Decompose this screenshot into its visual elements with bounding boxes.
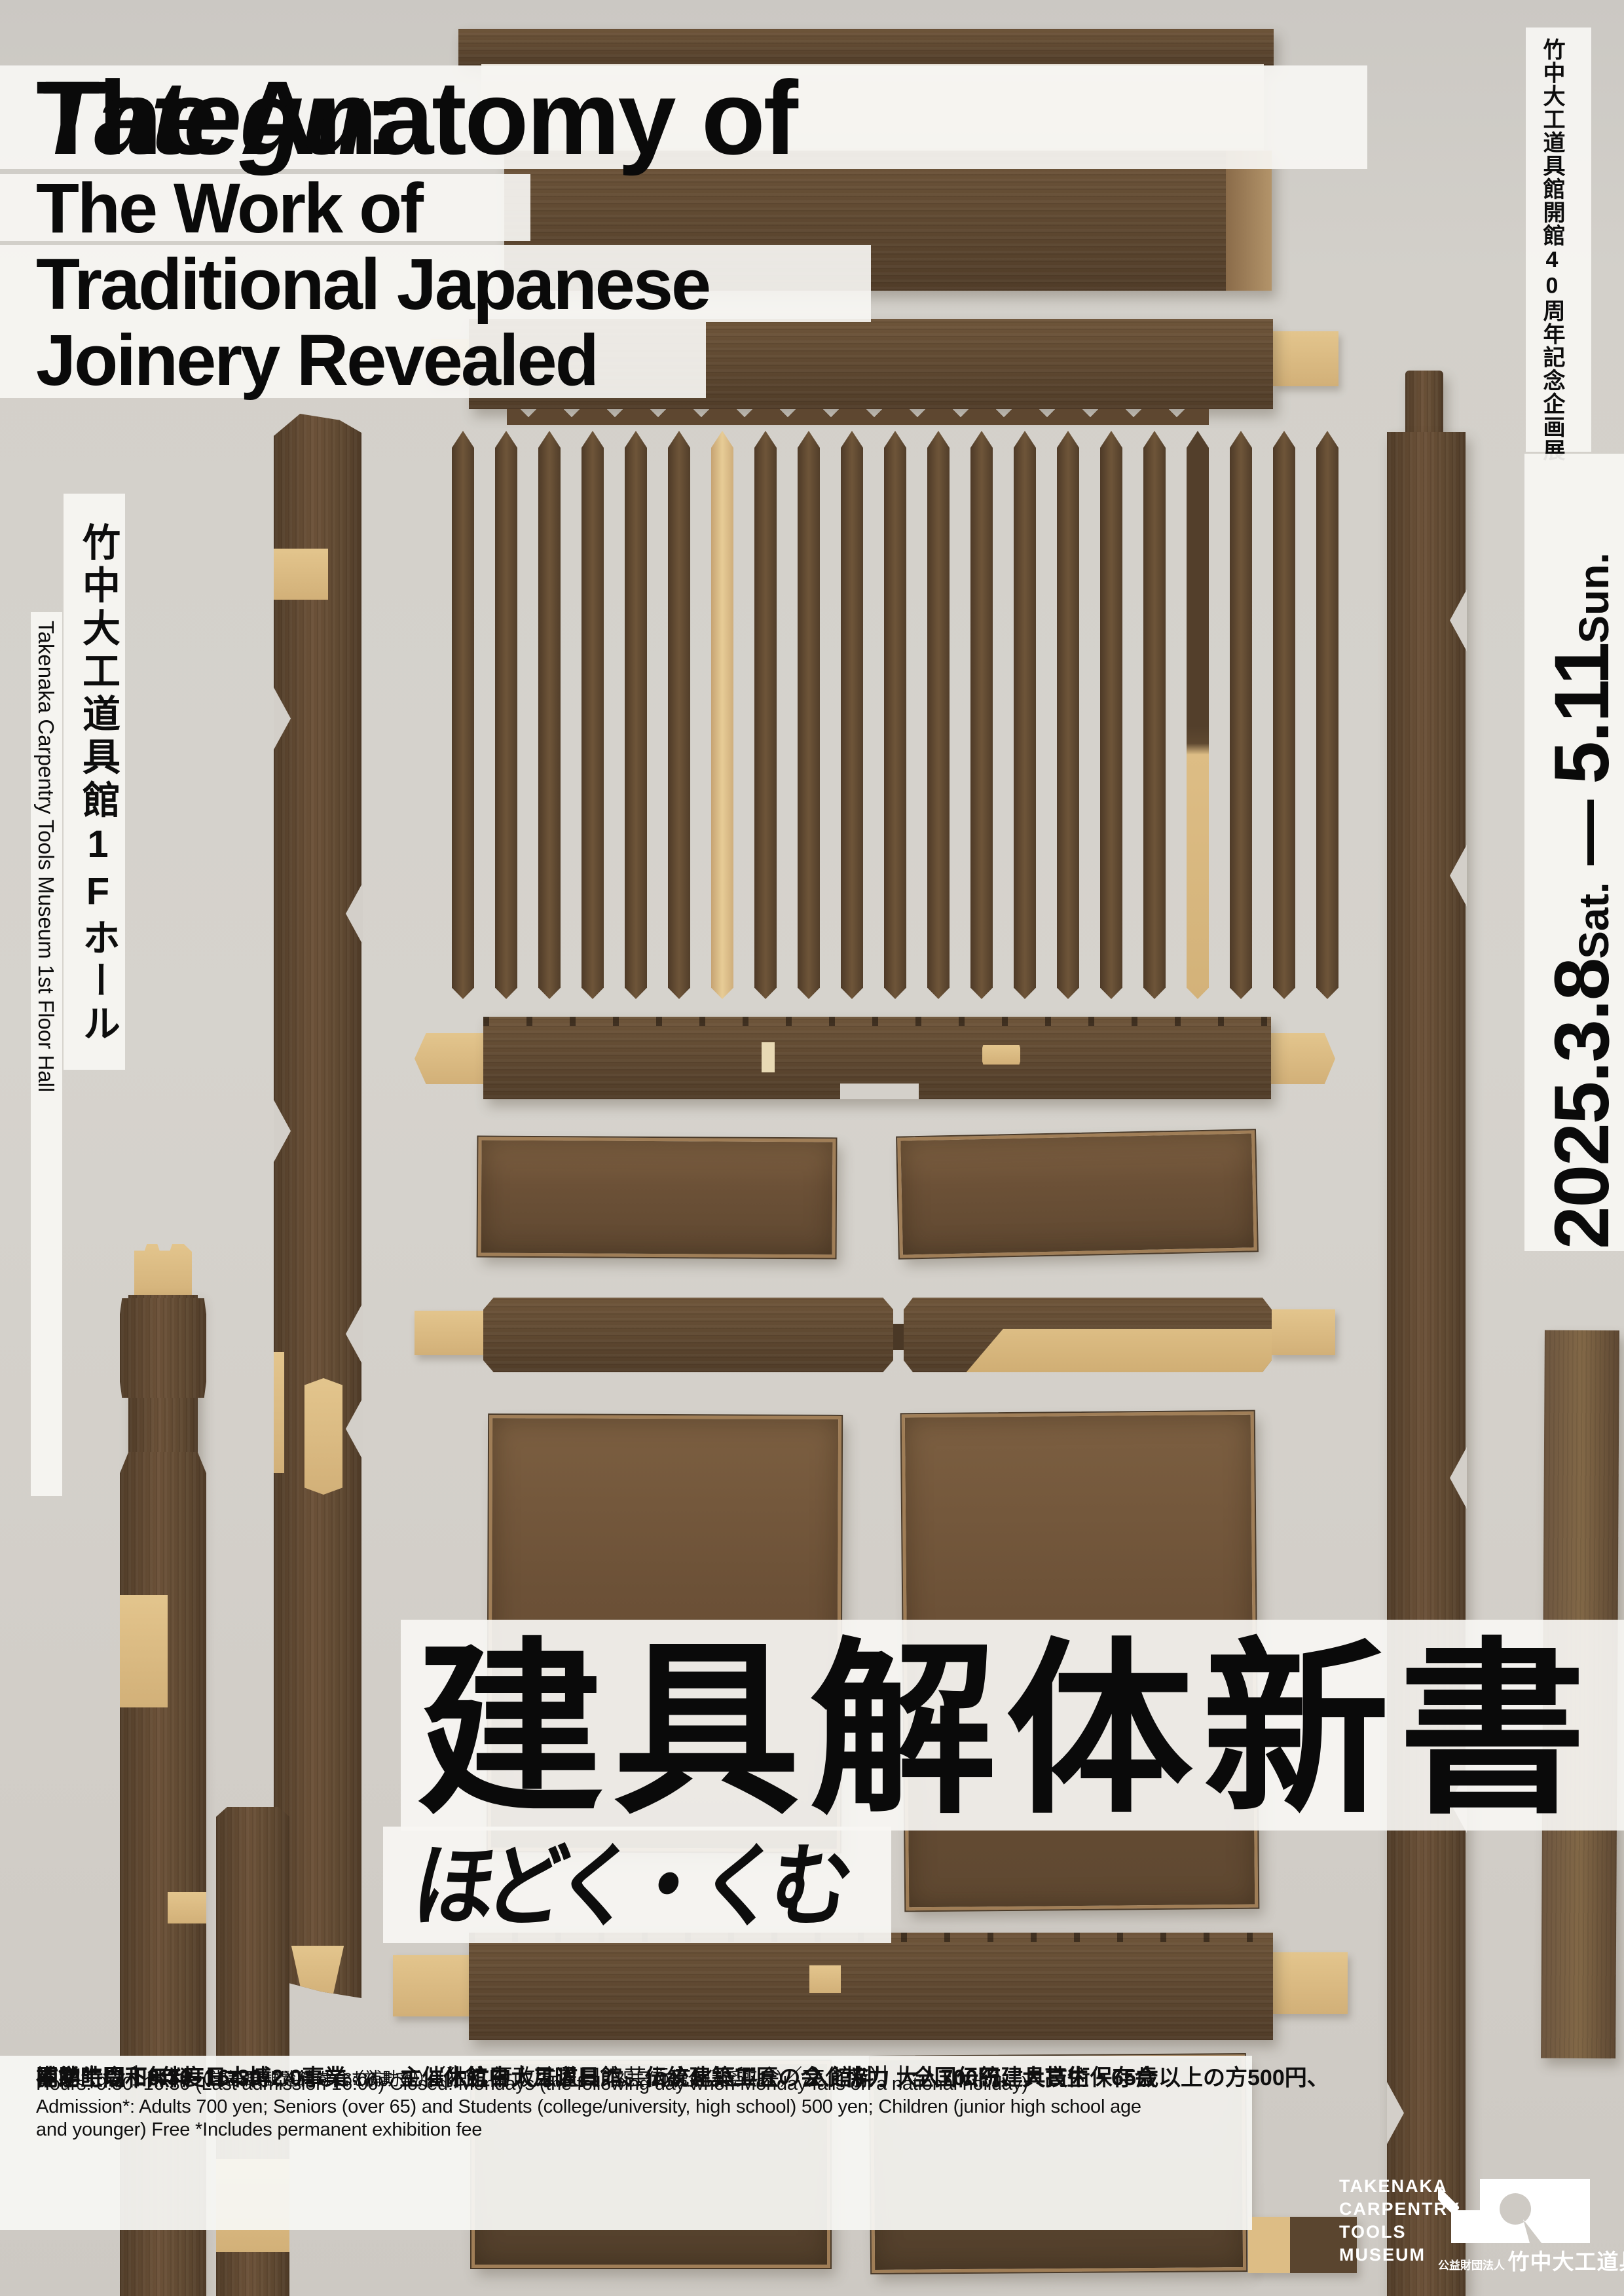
rail1-right-tenon xyxy=(1268,1033,1335,1084)
wood-middle-rail-2-left xyxy=(483,1298,893,1372)
kumiko-slat xyxy=(1143,431,1166,999)
poster-title-line3: Traditional Japanese xyxy=(36,249,709,321)
kumiko-slat xyxy=(1100,431,1122,999)
kumiko-slat xyxy=(841,431,863,999)
kumiko-slat xyxy=(1316,431,1338,999)
date-end-day: Sun. xyxy=(1570,553,1617,644)
main-title-kanji: 建具解体新書 xyxy=(416,1625,1595,1836)
rail1-left-tenon xyxy=(415,1033,487,1084)
poster-title-line1: The Anatomy of Tategu: xyxy=(36,68,397,168)
stile-b-bulge-upper xyxy=(120,1298,206,1398)
rail1-bottom-notch xyxy=(840,1084,919,1099)
wood-panel-1-right xyxy=(897,1130,1257,1258)
bottom-rail-left-tenon xyxy=(393,1955,473,2016)
wood-left-stile-a xyxy=(274,414,361,1998)
kumiko-slat xyxy=(754,431,777,999)
kumiko-slat xyxy=(452,431,474,999)
text-line: and younger) Free *Includes permanent ex… xyxy=(36,2119,1241,2141)
left-venue-text-en: Takenaka Carpentry Tools Museum 1st Floo… xyxy=(32,621,60,1491)
stile-a-hex-splice xyxy=(304,1378,342,1495)
bottom-rail-right-tenon xyxy=(1270,1952,1348,2014)
rail1-slot xyxy=(762,1042,775,1072)
rail1-plug xyxy=(982,1045,1020,1065)
exhibition-poster: The Anatomy of Tategu: The Work of Tradi… xyxy=(0,0,1624,2296)
wood-middle-rail-1 xyxy=(483,1017,1271,1099)
kumiko-slat xyxy=(798,431,820,999)
kumiko-slat xyxy=(1057,431,1079,999)
date-start: 2025.3.8 xyxy=(1539,959,1624,1249)
poster-title-line4: Joinery Revealed xyxy=(36,325,597,397)
info-en-lines: Hours: 9:30–16:30 (Last admission 16:00)… xyxy=(36,2073,1241,2141)
text-line: Hours: 9:30–16:30 (Last admission 16:00)… xyxy=(36,2073,1241,2096)
wood-middle-rail-2-right xyxy=(904,1298,1272,1372)
poster-title-line2: The Work of xyxy=(36,175,422,241)
museum-logo-mark xyxy=(1438,2170,1590,2243)
title-line1-colon: : xyxy=(364,59,397,176)
kumiko-slat xyxy=(495,431,517,999)
museum-name-jp: 公益財団法人 竹中大工道具館 xyxy=(1438,2244,1621,2273)
wood-bottom-rail xyxy=(469,1933,1273,2040)
subtitle-kana: ほどく・くむ xyxy=(406,1829,851,1944)
stile-b-splice xyxy=(120,1595,168,1707)
stile-b-small-splice xyxy=(168,1892,206,1923)
date-dash: ― xyxy=(1549,784,1623,883)
kumiko-slat xyxy=(625,431,647,999)
kumiko-slat xyxy=(668,431,690,999)
stile-a-splice xyxy=(274,549,328,600)
bottom-rail-plug xyxy=(809,1965,841,1993)
stile-b-fork-tenon xyxy=(134,1244,192,1300)
wood-right-stile xyxy=(1387,432,1466,2296)
kumiko-slat xyxy=(970,431,993,999)
rail2-splice-wedge xyxy=(904,1298,1272,1372)
rail2-left-tenon xyxy=(415,1311,487,1355)
kumiko-slat xyxy=(884,431,906,999)
kumiko-slat xyxy=(1230,431,1252,999)
date-start-day: Sat. xyxy=(1570,882,1617,958)
text-line: Admission*: Adults 700 yen; Seniors (ove… xyxy=(36,2096,1241,2119)
kumiko-slat xyxy=(538,431,561,999)
museum-name-jp-large: 竹中大工道具館 xyxy=(1507,2250,1624,2274)
exhibition-dates: 2025.3.8Sat. ― 5.11Sun. xyxy=(1532,454,1624,1249)
rail2-right-tenon xyxy=(1268,1309,1335,1355)
stile-a-edge-splice xyxy=(274,1352,284,1473)
rail1-mortise-marks xyxy=(483,1017,1271,1026)
date-end: 5.11 xyxy=(1539,644,1624,784)
left-venue-text-jp: 竹中大工道具館1Fホール xyxy=(70,522,125,1046)
museum-name-jp-small: 公益財団法人 xyxy=(1438,2259,1505,2272)
kumiko-slat-light xyxy=(711,431,733,999)
rail2-connector xyxy=(893,1324,904,1350)
info-text: 開館時間｜9:30−16:30（入館は16:00まで） 休館日｜月曜日（祝日の場… xyxy=(36,2064,1241,2227)
wood-panel-1-left xyxy=(478,1137,836,1258)
kumiko-slat-spliced xyxy=(1187,431,1209,999)
kumiko-slat xyxy=(1273,431,1295,999)
title-line1-italic: Tategu xyxy=(36,59,364,176)
right-exhibition-text-jp: 竹中大工道具館開館40周年記念企画展 xyxy=(1536,38,1568,462)
kumiko-slat xyxy=(581,431,604,999)
kumiko-slat xyxy=(927,431,950,999)
kumiko-slat xyxy=(1014,431,1036,999)
